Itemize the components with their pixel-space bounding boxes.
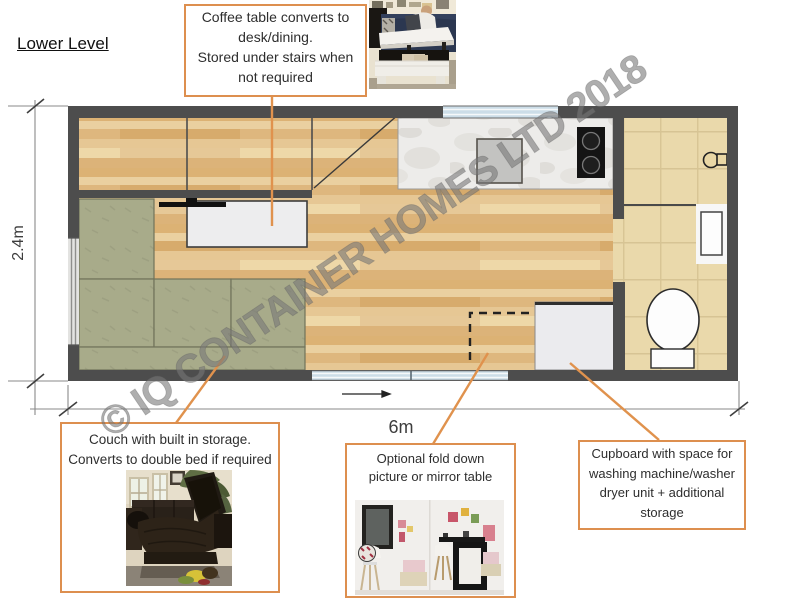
svg-text:2.4m: 2.4m <box>10 225 27 261</box>
svg-text:6m: 6m <box>388 417 413 437</box>
